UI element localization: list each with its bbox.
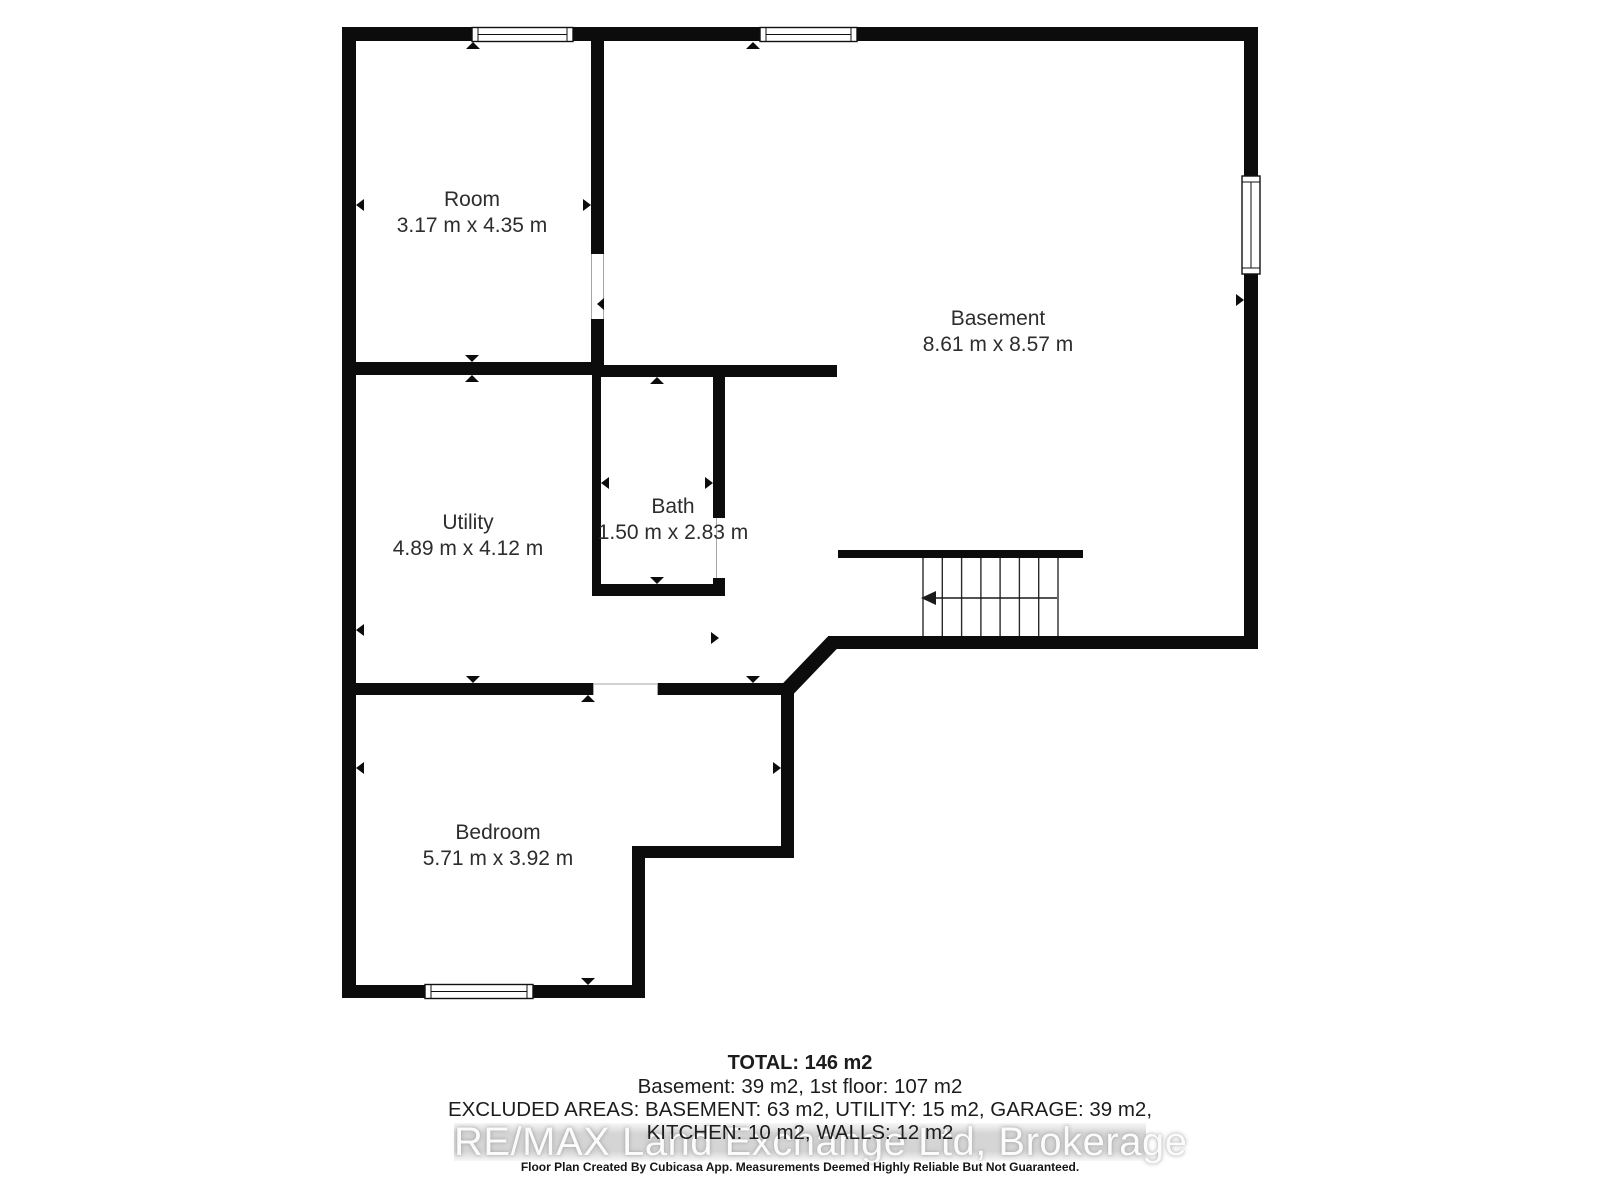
arrow-down-icon [650,577,664,584]
wall-bath-bottom [592,584,725,596]
wall-room-utility-divider [342,362,592,375]
arrow-right-icon [705,477,713,489]
summary-total: TOTAL: 146 m2 [0,1052,1600,1075]
floor-plan-page: Room 3.17 m x 4.35 m Basement 8.61 m x 8… [0,0,1600,1200]
arrow-down-icon [581,978,595,985]
wall-bedroom-right-lower [632,846,645,998]
arrow-up-icon [746,42,760,49]
arrow-right-icon [583,199,591,211]
summary-floors: Basement: 39 m2, 1st floor: 107 m2 [0,1075,1600,1098]
arrow-up-icon [581,695,595,702]
room-dimensions-utility: 4.89 m x 4.12 m [393,537,544,560]
wall-diagonal [786,642,833,691]
wall-basement-bottom [828,636,1258,649]
wall-bedroom-top-right [658,683,794,695]
wall-bath-hall-top [592,365,837,377]
wall-right [1244,27,1258,649]
room-label-room: Room [444,188,500,211]
wall-bedroom-top-left [342,683,593,695]
window-bedroom [425,985,533,999]
arrow-left-icon [356,762,364,774]
room-label-basement: Basement [951,307,1046,330]
arrow-down-icon [746,676,760,683]
room-dimensions-bath: 1.50 m x 2.83 m [598,521,749,544]
arrow-down-icon [466,676,480,683]
wall-stairs-rail [838,550,1083,558]
arrow-right-icon [773,762,781,774]
area-summary: TOTAL: 146 m2 Basement: 39 m2, 1st floor… [0,1052,1600,1144]
arrow-up-icon [466,42,480,49]
room-label-utility: Utility [442,511,494,534]
window-right-wall [1242,176,1260,274]
arrow-left-icon [601,477,609,489]
window-top-left [472,28,573,42]
arrow-left-icon [356,624,364,636]
disclaimer-text: Floor Plan Created By Cubicasa App. Meas… [0,1159,1600,1175]
summary-excluded-line1: EXCLUDED AREAS: BASEMENT: 63 m2, UTILITY… [0,1098,1600,1121]
summary-excluded-line2: KITCHEN: 10 m2, WALLS: 12 m2 [0,1121,1600,1144]
arrow-down-icon [465,355,479,362]
arrow-right-icon [711,632,719,644]
arrow-left-icon [356,199,364,211]
room-label-bedroom: Bedroom [455,821,540,844]
wall-bath-left [592,375,601,596]
stair-treads [923,558,1058,636]
wall-bedroom-notch [632,846,794,858]
room-dimensions-basement: 8.61 m x 8.57 m [923,333,1074,356]
arrow-up-icon [465,375,479,382]
window-top-right [760,28,857,42]
room-label-bath: Bath [651,495,694,518]
room-labels: Room 3.17 m x 4.35 m Basement 8.61 m x 8… [393,188,1074,870]
wall-room-right-upper [591,41,604,254]
floor-plan-drawing: Room 3.17 m x 4.35 m Basement 8.61 m x 8… [0,0,1600,1200]
door-openings [592,254,717,695]
room-dimensions-bedroom: 5.71 m x 3.92 m [423,847,574,870]
wall-left [342,27,356,998]
wall-bedroom-right-upper [781,683,794,858]
arrow-up-icon [650,377,664,384]
arrow-right-icon [1236,294,1244,306]
room-dimensions-room: 3.17 m x 4.35 m [397,214,548,237]
staircase [921,558,1058,636]
arrow-left-icon [597,298,604,310]
wall-bath-right-upper [713,377,725,518]
